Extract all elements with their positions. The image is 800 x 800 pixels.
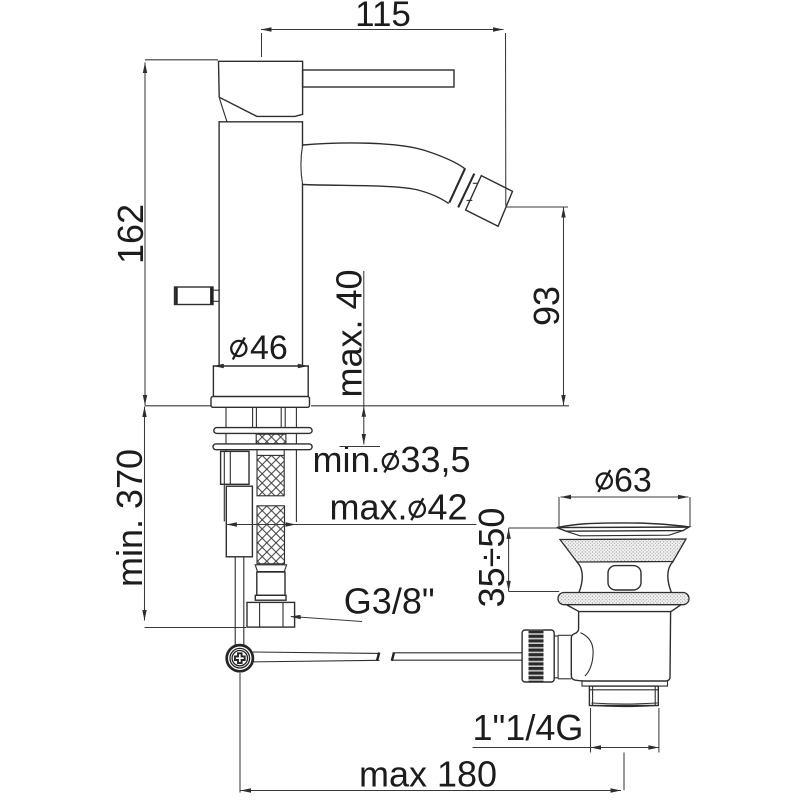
svg-text:33,5: 33,5	[401, 439, 471, 480]
svg-text:46: 46	[250, 329, 288, 367]
svg-text:115: 115	[355, 0, 411, 34]
svg-text:1"1/4G: 1"1/4G	[473, 707, 584, 748]
svg-text:max 180: max 180	[359, 754, 497, 795]
svg-text:min. 370: min. 370	[109, 449, 150, 587]
svg-text:min.: min.	[313, 439, 381, 480]
svg-text:93: 93	[526, 286, 567, 326]
svg-text:63: 63	[614, 462, 652, 500]
svg-text:42: 42	[428, 487, 468, 528]
svg-text:35÷50: 35÷50	[471, 508, 512, 608]
svg-text:max.: max.	[330, 487, 408, 528]
svg-text:G3/8": G3/8"	[344, 581, 435, 622]
